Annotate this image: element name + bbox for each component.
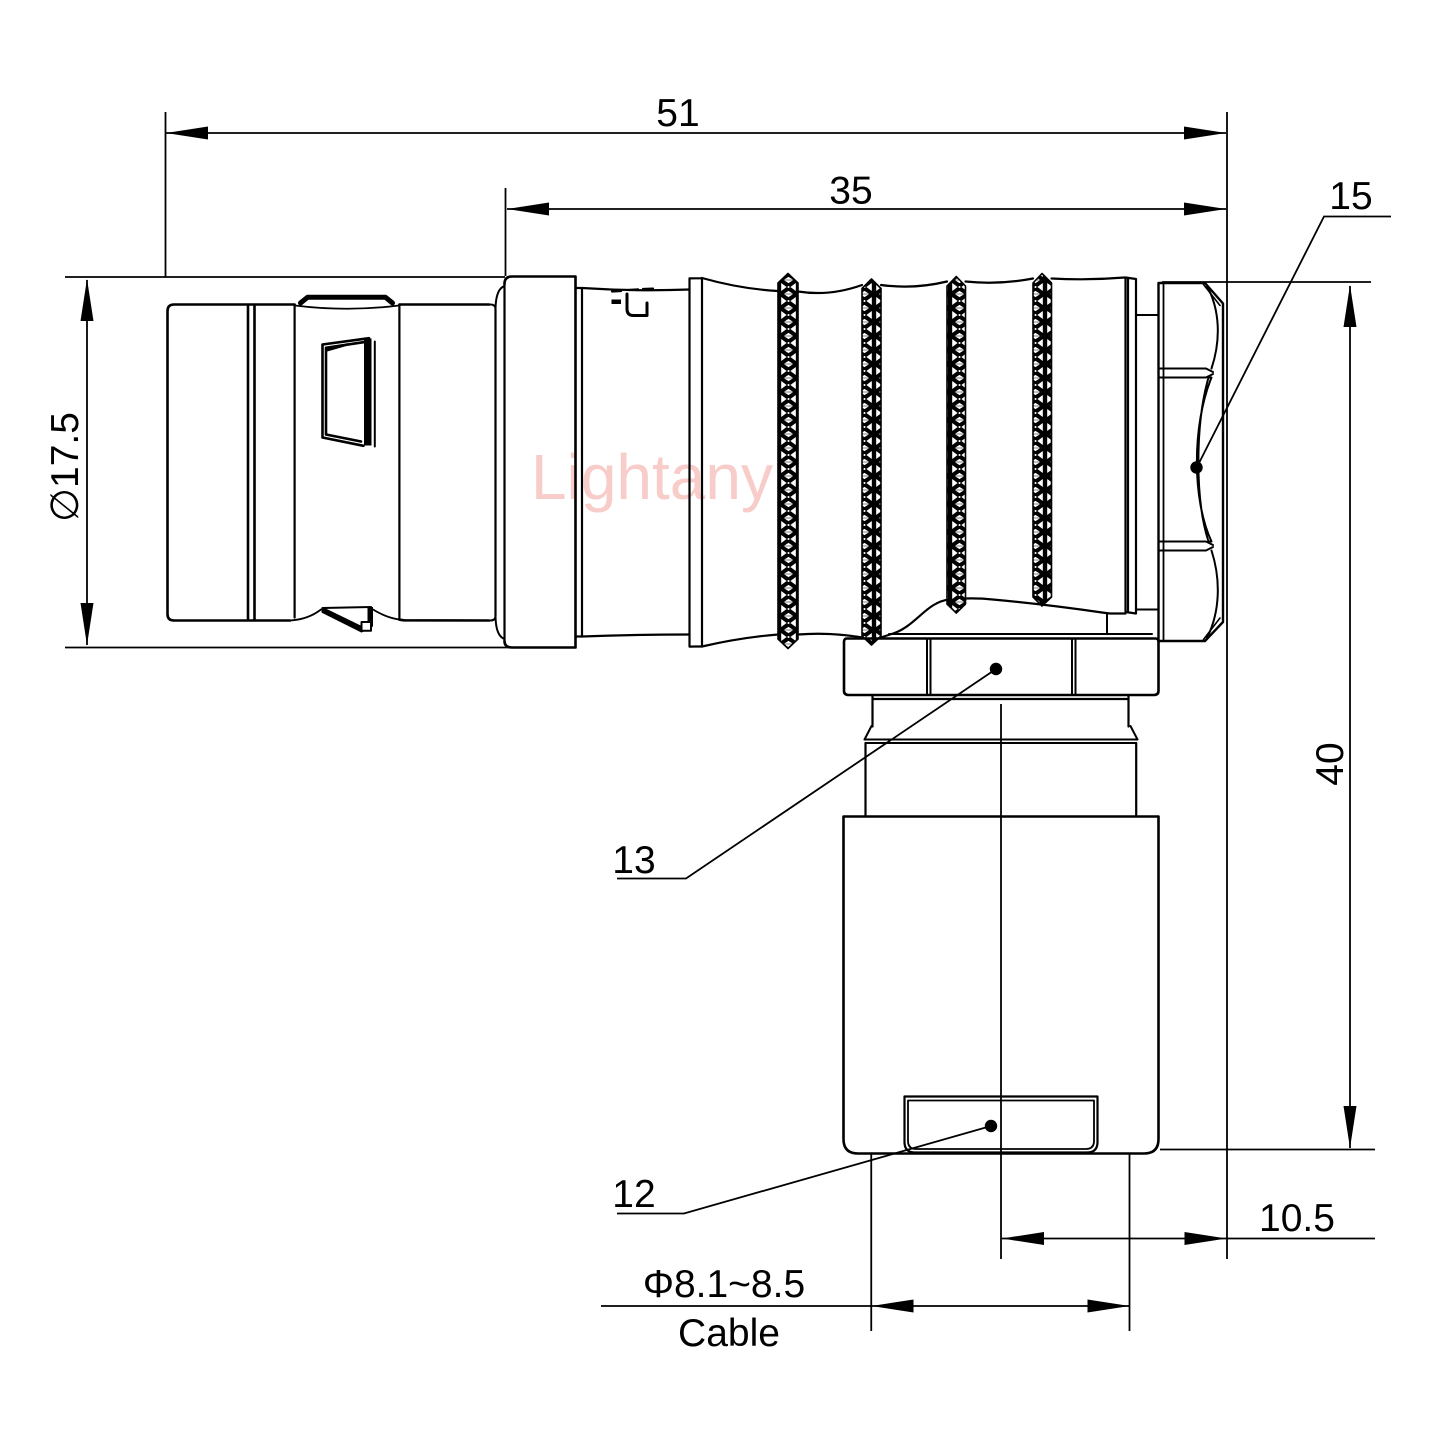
svg-text:51: 51 [656, 92, 699, 135]
svg-text:35: 35 [829, 170, 872, 213]
svg-text:13: 13 [612, 839, 655, 882]
svg-text:Lightany: Lightany [531, 441, 773, 513]
svg-text:12: 12 [612, 1173, 655, 1216]
svg-text:10.5: 10.5 [1259, 1197, 1335, 1240]
svg-text:Cable: Cable [678, 1312, 780, 1355]
svg-text:15: 15 [1329, 175, 1372, 218]
svg-text:Φ8.1~8.5: Φ8.1~8.5 [643, 1263, 805, 1306]
svg-text:∅17.5: ∅17.5 [44, 412, 87, 522]
svg-text:40: 40 [1309, 742, 1352, 785]
